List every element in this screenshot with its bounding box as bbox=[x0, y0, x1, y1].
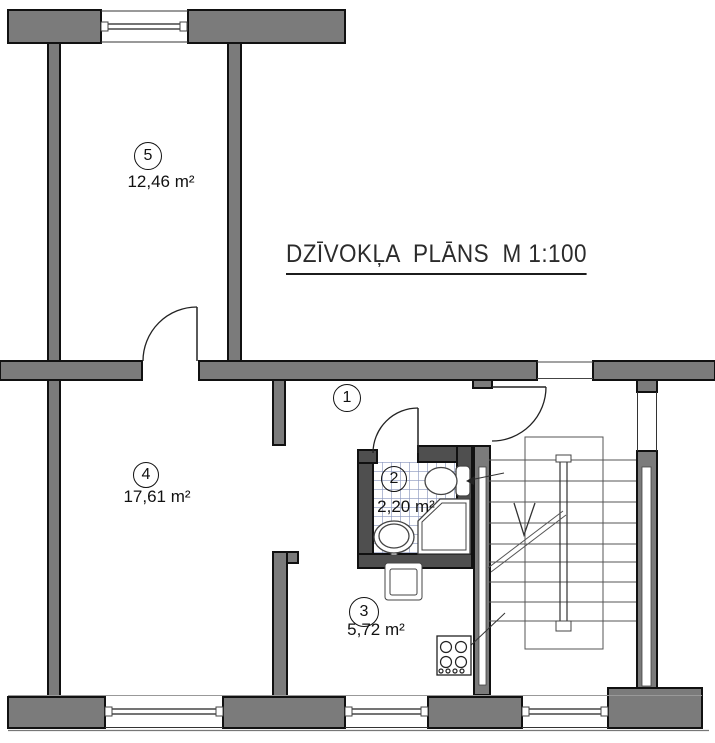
wall-top-center bbox=[188, 10, 345, 43]
stove-burner bbox=[441, 657, 452, 668]
wall-room4-stub bbox=[273, 380, 285, 445]
window-end-cap bbox=[345, 707, 352, 716]
wall-middle-left bbox=[0, 361, 142, 380]
railing-cap bbox=[556, 621, 571, 631]
window-end-cap bbox=[105, 707, 112, 716]
room-number-4: 4 bbox=[133, 462, 159, 488]
stair-left-wall-window bbox=[479, 467, 486, 685]
door-arc-entrance bbox=[492, 387, 546, 441]
room-area-2: 2,20 m² bbox=[377, 497, 435, 517]
wall-bottom-c bbox=[428, 697, 522, 728]
wall-entry-stub bbox=[473, 380, 492, 388]
stove-burner bbox=[456, 642, 467, 653]
room-number-1: 1 bbox=[333, 384, 361, 412]
wall-corner-bottom-right bbox=[608, 688, 702, 728]
window-end-cap bbox=[216, 707, 223, 716]
wall-top-left bbox=[8, 10, 101, 43]
stair-landing bbox=[525, 437, 603, 649]
floor-plan: DZĪVOKĻA PLĀNS M 1:100 512,46 m²417,61 m… bbox=[0, 0, 715, 743]
wall-bath-left bbox=[358, 450, 373, 568]
kitchen-sink-inner bbox=[390, 569, 417, 595]
stove-burner bbox=[441, 642, 452, 653]
room-area-5: 12,46 m² bbox=[127, 172, 194, 192]
wall-right-stub bbox=[637, 380, 657, 392]
room-area-3: 5,72 m² bbox=[347, 620, 405, 640]
plan-title: DZĪVOKĻA PLĀNS M 1:100 bbox=[286, 240, 587, 275]
toilet-bowl bbox=[425, 468, 457, 495]
room-number-5: 5 bbox=[134, 142, 162, 170]
room-area-4: 17,61 m² bbox=[123, 487, 190, 507]
wall-bottom-b bbox=[223, 697, 345, 728]
door-arc-bathroom bbox=[373, 408, 418, 453]
door-arc-room5 bbox=[143, 307, 197, 361]
stove-knob bbox=[460, 669, 464, 673]
window-end-cap bbox=[601, 707, 608, 716]
railing-cap bbox=[556, 455, 571, 462]
wall-room4-room3 bbox=[273, 552, 287, 697]
stove-knob bbox=[439, 669, 443, 673]
wall-middle-right bbox=[593, 361, 715, 380]
wall-room5-right bbox=[228, 43, 241, 361]
wall-middle-center bbox=[199, 361, 537, 380]
window-end-cap bbox=[180, 22, 187, 31]
window-end-cap bbox=[101, 22, 108, 31]
stove-knob bbox=[446, 669, 450, 673]
room-number-2: 2 bbox=[381, 466, 407, 492]
window-end-cap bbox=[522, 707, 529, 716]
wall-bottom-a bbox=[8, 697, 105, 728]
stove-knob bbox=[453, 669, 457, 673]
bath-sink-inner bbox=[379, 524, 409, 548]
stair-right-wall-window bbox=[642, 467, 651, 686]
stove-burner bbox=[456, 657, 467, 668]
window-end-cap bbox=[421, 707, 428, 716]
wall-bath-top-left bbox=[358, 450, 377, 463]
